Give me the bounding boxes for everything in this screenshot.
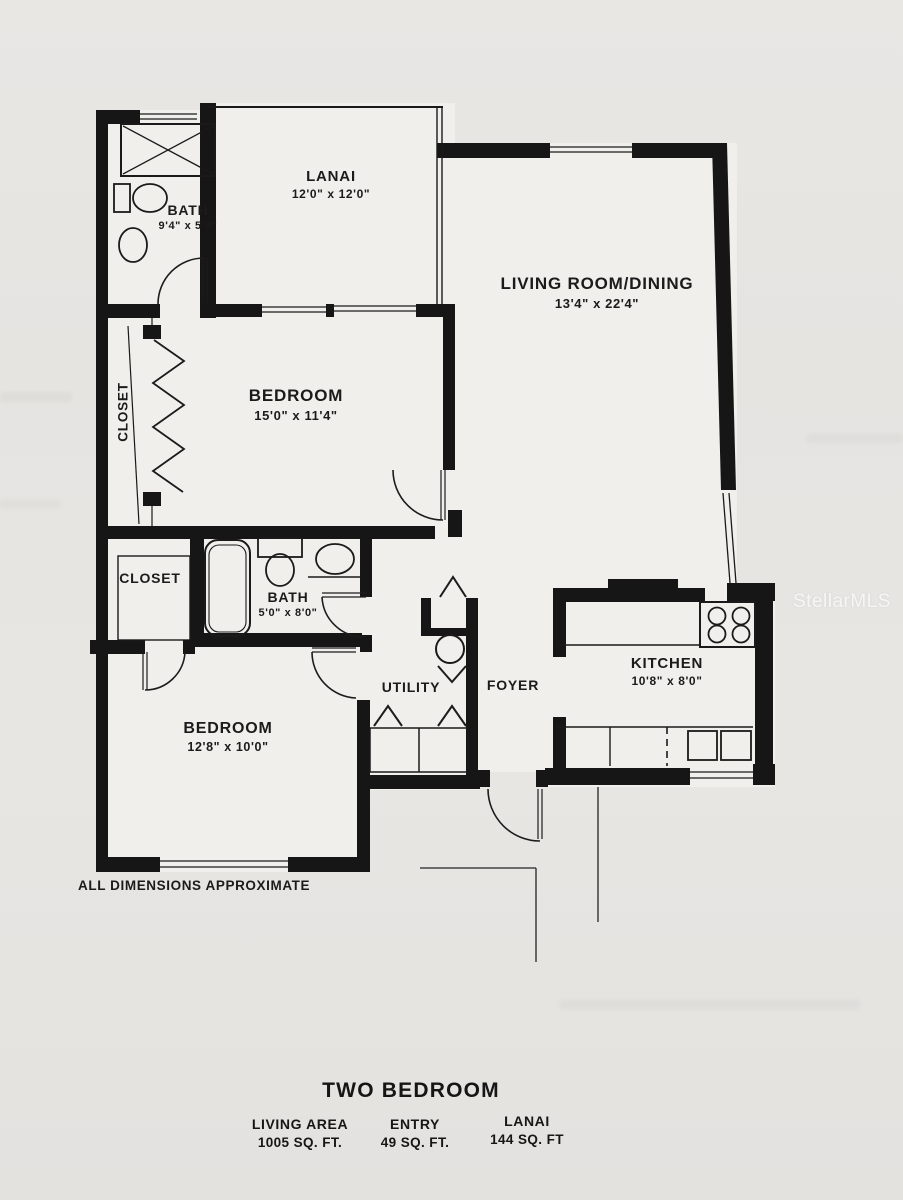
room-label-closet2: CLOSET — [119, 570, 181, 586]
room-label-foyer: FOYER — [487, 677, 539, 693]
room-label-bedroom1: BEDROOM 15'0" x 11'4" — [249, 386, 343, 423]
area-lanai: LANAI 144 SQ. FT — [490, 1113, 564, 1147]
stove — [700, 602, 755, 647]
scanned-floor-plan-page: LANAI 12'0" x 12'0" LIVING ROOM/DINING 1… — [0, 0, 903, 1200]
room-label-kitchen: KITCHEN 10'8" x 8'0" — [631, 655, 703, 688]
room-label-closet1: CLOSET — [116, 382, 131, 442]
entry-door — [488, 789, 542, 841]
entry-walkway — [420, 787, 598, 962]
room-label-living-room: LIVING ROOM/DINING 13'4" x 22'4" — [501, 274, 694, 311]
room-label-bath1: BATH 9'4" x 5'0" — [159, 202, 218, 232]
dimensions-note: ALL DIMENSIONS APPROXIMATE — [78, 878, 310, 893]
floor-plan-drawing — [0, 0, 903, 1200]
room-label-bedroom2: BEDROOM 12'8" x 10'0" — [183, 720, 272, 754]
stellar-mls-watermark: StellarMLS — [793, 591, 891, 613]
room-label-lanai: LANAI 12'0" x 12'0" — [292, 168, 370, 201]
area-living: LIVING AREA 1005 SQ. FT. — [252, 1116, 348, 1150]
area-entry: ENTRY 49 SQ. FT. — [381, 1116, 450, 1150]
room-label-utility: UTILITY — [382, 679, 440, 695]
room-label-bath2: BATH 5'0" x 8'0" — [259, 589, 318, 619]
plan-title: TWO BEDROOM — [322, 1079, 500, 1103]
